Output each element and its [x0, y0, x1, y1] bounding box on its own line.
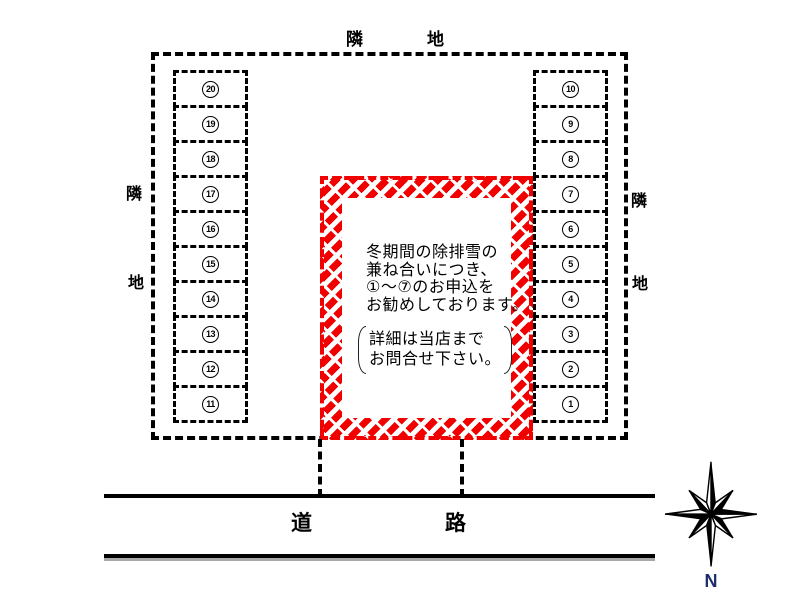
parking-stall-5: 5 [533, 245, 608, 283]
parking-stall-13: 13 [173, 315, 248, 353]
bracket-note-line: 詳細は当店まで [369, 330, 501, 350]
road-edge-bottom [104, 554, 655, 558]
stall-number-circle: 11 [202, 396, 219, 413]
adjacent-land-char: 地 [128, 275, 144, 292]
parking-lot-diagram: 隣 地 隣 地 隣 地 20191817161514131211 1098765… [0, 0, 800, 606]
notice-panel: 冬期間の除排雪の 兼ね合いにつき、 ①～⑦のお申込を お勧めしております。 詳細… [342, 198, 511, 418]
stall-number-circle: 15 [202, 256, 219, 273]
stall-number-circle: 8 [562, 151, 579, 168]
stall-number-circle: 10 [562, 81, 579, 98]
parking-column-right: 10987654321 [533, 70, 608, 423]
stall-number-circle: 3 [562, 326, 579, 343]
entrance-line-left [318, 439, 322, 497]
road-label: 道 [291, 507, 312, 537]
entrance-line-right [460, 439, 464, 497]
parking-stall-15: 15 [173, 245, 248, 283]
adjacent-land-label-left: 地 [128, 276, 144, 292]
bracket-note-text: 詳細は当店まで お問合せ下さい。 [366, 326, 504, 374]
stall-number-circle: 19 [202, 116, 219, 133]
adjacent-land-char: 地 [632, 276, 648, 293]
adjacent-land-label-right: 隣 [631, 194, 647, 210]
notice-bracket-note: 詳細は当店まで お問合せ下さい。 [358, 326, 512, 374]
parking-stall-17: 17 [173, 175, 248, 213]
stall-number-circle: 13 [202, 326, 219, 343]
stall-number-circle: 7 [562, 186, 579, 203]
parking-stall-4: 4 [533, 280, 608, 318]
compass-north-label: N [658, 571, 764, 592]
stall-number-circle: 20 [202, 81, 219, 98]
parking-stall-1: 1 [533, 385, 608, 423]
snow-storage-hatched-zone: 冬期間の除排雪の 兼ね合いにつき、 ①～⑦のお申込を お勧めしております。 詳細… [320, 176, 533, 440]
stall-number-circle: 4 [562, 291, 579, 308]
parking-stall-16: 16 [173, 210, 248, 248]
stall-number-circle: 18 [202, 151, 219, 168]
road-label: 路 [445, 507, 466, 537]
parking-stall-14: 14 [173, 280, 248, 318]
notice-text: 冬期間の除排雪の 兼ね合いにつき、 ①～⑦のお申込を お勧めしております。 [366, 244, 528, 314]
stall-number-circle: 5 [562, 256, 579, 273]
parking-stall-12: 12 [173, 350, 248, 388]
notice-line: お勧めしております。 [366, 297, 528, 315]
stall-number-circle: 17 [202, 186, 219, 203]
stall-number-circle: 16 [202, 221, 219, 238]
parking-stall-20: 20 [173, 70, 248, 108]
parking-stall-19: 19 [173, 105, 248, 143]
road-edge-top [104, 494, 655, 498]
stall-number-circle: 12 [202, 361, 219, 378]
parking-stall-9: 9 [533, 105, 608, 143]
adjacent-land-label-right: 地 [632, 277, 648, 293]
left-parenthesis-shape [358, 326, 366, 374]
adjacent-land-char: 隣 [126, 186, 142, 203]
adjacent-land-char: 隣 [631, 193, 647, 210]
notice-line: 兼ね合いにつき、 [366, 262, 528, 280]
parking-stall-7: 7 [533, 175, 608, 213]
parking-stall-3: 3 [533, 315, 608, 353]
parking-stall-8: 8 [533, 140, 608, 178]
stall-number-circle: 2 [562, 361, 579, 378]
stall-number-circle: 1 [562, 396, 579, 413]
parking-stall-18: 18 [173, 140, 248, 178]
adjacent-land-label-top: 隣 地 [346, 25, 444, 50]
adjacent-land-label-left: 隣 [126, 187, 142, 203]
parking-stall-2: 2 [533, 350, 608, 388]
stall-number-circle: 6 [562, 221, 579, 238]
notice-line: ①～⑦のお申込を [366, 279, 528, 297]
parking-stall-10: 10 [533, 70, 608, 108]
right-parenthesis-shape [504, 326, 512, 374]
stall-number-circle: 14 [202, 291, 219, 308]
parking-stall-11: 11 [173, 385, 248, 423]
stall-number-circle: 9 [562, 116, 579, 133]
notice-line: 冬期間の除排雪の [366, 244, 528, 262]
adjacent-land-char: 隣 [346, 25, 363, 50]
adjacent-land-char: 地 [427, 25, 444, 50]
bracket-note-line: お問合せ下さい。 [369, 350, 501, 370]
parking-column-left: 20191817161514131211 [173, 70, 248, 423]
compass-rose-icon [658, 459, 764, 573]
parking-stall-6: 6 [533, 210, 608, 248]
